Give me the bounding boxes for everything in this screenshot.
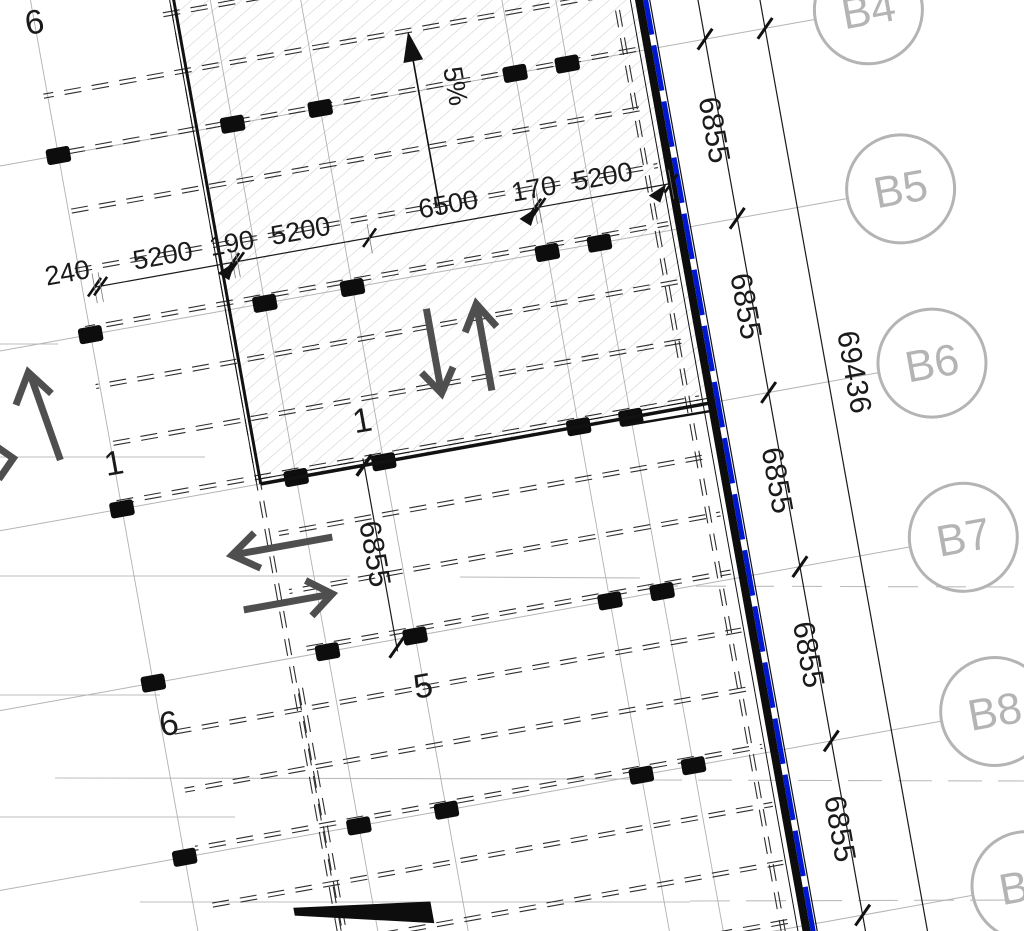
dimension-tick — [695, 29, 716, 50]
parking-dash-line — [205, 802, 772, 904]
grid-bubble-B5: B5 — [838, 126, 963, 251]
dim-5200-a: 5200 — [131, 236, 195, 276]
column — [77, 325, 103, 345]
dim-bay-4: 6855 — [786, 619, 830, 691]
left-arrow — [229, 519, 336, 572]
column — [171, 847, 197, 867]
dim-bay-2: 6855 — [723, 270, 767, 342]
column — [45, 146, 71, 166]
grid-bubbles: B4 B5 B6 B7 B8 B9 — [806, 0, 1024, 931]
aisle-dash-line — [299, 688, 362, 931]
dim-240: 240 — [42, 254, 92, 292]
axis-label-6-bottom: 6 — [156, 704, 181, 745]
parking-dash-line — [227, 922, 794, 931]
dim-bay-1: 6855 — [692, 94, 736, 166]
grid-bubble-B4: B4 — [806, 0, 931, 72]
parking-dash-line — [206, 806, 773, 908]
dim-bay-5: 6855 — [817, 793, 861, 865]
dimension-tick — [789, 556, 810, 577]
grid-bubble-B7: B7 — [901, 475, 1024, 600]
parking-dash-line — [174, 628, 741, 730]
svg-text:B8: B8 — [964, 683, 1024, 741]
svg-text:B6: B6 — [901, 335, 963, 393]
grid-bubble-B9: B9 — [963, 823, 1024, 931]
parking-dash-line — [175, 632, 742, 734]
axis-label-6-top: 6 — [22, 2, 47, 43]
grid-bubble-B6: B6 — [869, 300, 994, 425]
parking-dash-line — [195, 744, 762, 846]
dimension-tick — [821, 730, 842, 751]
column — [109, 499, 135, 519]
dimension-tick — [758, 382, 779, 403]
grid-bubble-B8: B8 — [932, 649, 1024, 774]
dim-overall: 69436 — [830, 328, 877, 416]
bottom-wall-wedge — [293, 884, 434, 931]
floor-plan-canvas: 240 5200 190 5200 6500 170 5200 6855 685… — [0, 0, 1024, 931]
edge-arrow-head — [0, 441, 16, 480]
column — [140, 673, 166, 693]
row-label-1-left: 1 — [101, 443, 126, 484]
dimension-tick — [727, 208, 748, 229]
parking-dash-line — [184, 686, 751, 788]
dimension-tick — [852, 905, 873, 926]
svg-text:B5: B5 — [870, 161, 932, 219]
svg-text:B4: B4 — [838, 0, 900, 39]
parking-dash-line — [196, 748, 763, 850]
stall-label-5: 5 — [410, 666, 435, 707]
parking-dash-line — [216, 860, 783, 931]
dim-bay-3: 6855 — [755, 445, 799, 517]
right-arrow — [241, 576, 336, 627]
big-up-arrow — [11, 369, 64, 466]
rotated-plan: 240 5200 190 5200 6500 170 5200 6855 685… — [0, 0, 1024, 931]
column — [597, 591, 623, 611]
parking-dash-line — [226, 918, 793, 931]
svg-text:B9: B9 — [995, 857, 1024, 915]
parking-dash-line — [185, 690, 752, 792]
floor-plan-sheet: 240 5200 190 5200 6500 170 5200 6855 685… — [0, 0, 1024, 931]
parking-dash-line — [216, 864, 783, 931]
dim-middle-6855: 6855 — [352, 518, 396, 590]
bay-dimension-line: 6855 6855 6855 6855 6855 — [649, 0, 877, 931]
column — [402, 626, 428, 646]
svg-text:B7: B7 — [933, 509, 995, 567]
